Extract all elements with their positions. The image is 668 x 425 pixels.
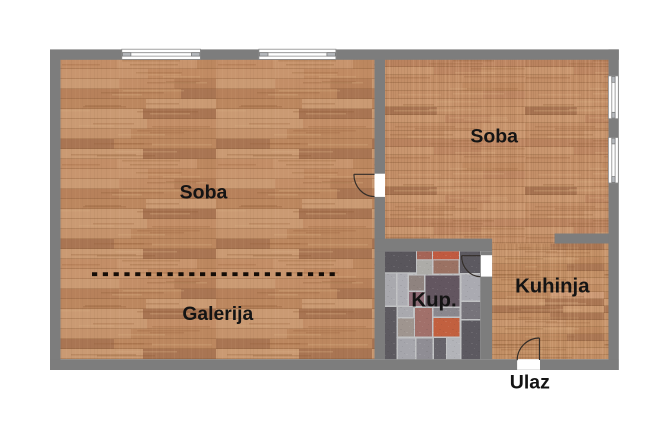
svg-text:Soba: Soba <box>180 181 228 203</box>
svg-text:Galerija: Galerija <box>182 304 253 325</box>
svg-text:Ulaz: Ulaz <box>510 371 550 393</box>
svg-text:Soba: Soba <box>470 126 518 148</box>
svg-text:Kuhinja: Kuhinja <box>515 275 590 297</box>
svg-text:Kup.: Kup. <box>411 289 456 311</box>
